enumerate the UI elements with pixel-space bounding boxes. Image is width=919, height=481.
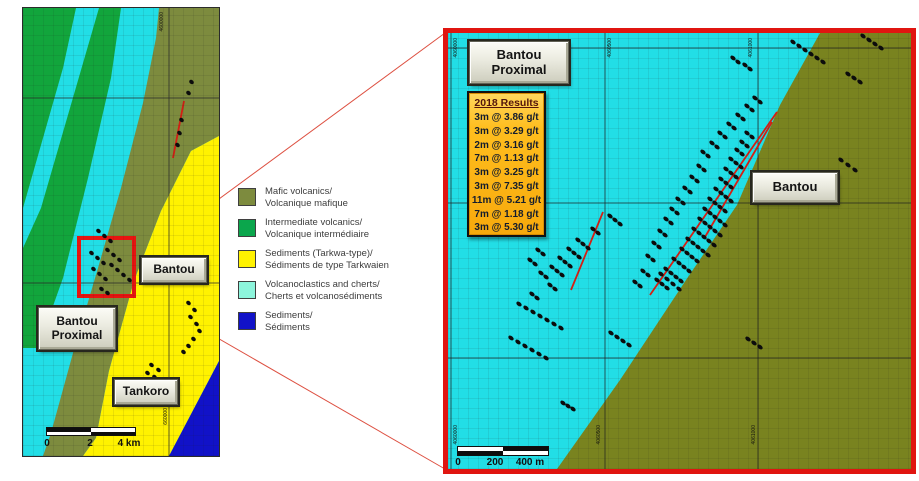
map-label-text: Bantou [773, 180, 818, 195]
map-label-text: Bantou [56, 315, 97, 328]
scale-tick: 2 [82, 438, 98, 449]
legend-item: Volcanoclastics and cherts/Cherts et vol… [238, 279, 438, 302]
legend-item: Sediments/Sédiments [238, 310, 438, 333]
coordinate-label: 4060000 [453, 38, 459, 57]
result-row: 3m @ 3.86 g/t [469, 111, 544, 125]
map-label-bantou: Bantou [752, 172, 838, 203]
coordinate-label: 4600000 [159, 12, 165, 31]
result-row: 7m @ 1.18 g/t [469, 208, 544, 222]
scale-segment [47, 432, 91, 436]
scale-bar-m [457, 446, 549, 456]
coordinate-label: 4060000 [453, 425, 459, 444]
legend-item: Sediments (Tarkwa-type)/Sédiments de typ… [238, 248, 438, 271]
map-label-bantou-proximal: Bantou Proximal [38, 307, 116, 350]
legend-color-swatch [238, 312, 256, 330]
zoom-map-panel: Bantou Proximal 2018 Results 3m @ 3.86 g… [443, 28, 916, 474]
legend-color-swatch [238, 219, 256, 237]
map-label-tankoro: Tankoro [114, 379, 178, 405]
map-label-bantou-proximal: Bantou Proximal [469, 41, 569, 84]
legend-color-swatch [238, 188, 256, 206]
legend-label-en: Sediments (Tarkwa-type)/ [265, 248, 389, 260]
coordinate-label: 4060500 [596, 425, 602, 444]
map-label-text: Tankoro [123, 385, 169, 398]
coordinate-label: 4061000 [748, 38, 754, 57]
map-label-text: Proximal [52, 329, 103, 342]
result-row: 3m @ 5.30 g/t [469, 221, 544, 235]
drill-results-box: 2018 Results 3m @ 3.86 g/t3m @ 3.29 g/t2… [467, 91, 546, 237]
legend-label: Sediments (Tarkwa-type)/Sédiments de typ… [265, 248, 389, 271]
legend-label-en: Intermediate volcanics/ [265, 217, 369, 229]
legend-label-fr: Cherts et volcanosédiments [265, 291, 382, 303]
drill-results-title: 2018 Results [469, 97, 544, 109]
legend-label: Volcanoclastics and cherts/Cherts et vol… [265, 279, 382, 302]
legend-item: Mafic volcanics/Volcanique mafique [238, 186, 438, 209]
result-row: 7m @ 1.13 g/t [469, 152, 544, 166]
regional-map: Bantou Bantou Proximal Tankoro 0 2 4 km … [22, 7, 220, 457]
scale-tick: 400 m [508, 457, 552, 468]
legend-label-fr: Sédiments de type Tarkwaien [265, 260, 389, 272]
scale-tick: 4 km [109, 438, 149, 449]
map-label-bantou: Bantou [141, 257, 207, 283]
legend-color-swatch [238, 281, 256, 299]
legend-label-fr: Volcanique mafique [265, 198, 348, 210]
result-row: 3m @ 3.29 g/t [469, 125, 544, 139]
scale-segment [91, 432, 135, 436]
result-row: 2m @ 3.16 g/t [469, 139, 544, 153]
geology-legend: Mafic volcanics/Volcanique mafiqueInterm… [238, 186, 438, 341]
result-row: 11m @ 5.21 g/t [469, 194, 544, 208]
legend-label: Intermediate volcanics/Volcanique interm… [265, 217, 369, 240]
legend-label-en: Sediments/ [265, 310, 313, 322]
scale-tick: 200 [481, 457, 509, 468]
map-label-text: Bantou [497, 48, 542, 63]
map-label-text: Bantou [153, 263, 194, 276]
legend-label-en: Volcanoclastics and cherts/ [265, 279, 382, 291]
legend-item: Intermediate volcanics/Volcanique interm… [238, 217, 438, 240]
result-row: 3m @ 3.25 g/t [469, 166, 544, 180]
legend-color-swatch [238, 250, 256, 268]
figure-geological-map: Bantou Bantou Proximal Tankoro 0 2 4 km … [0, 0, 919, 481]
legend-label: Mafic volcanics/Volcanique mafique [265, 186, 348, 209]
coordinate-label: 4060500 [607, 38, 613, 57]
coordinate-label: 4061000 [751, 425, 757, 444]
legend-label-fr: Volcanique intermédiaire [265, 229, 369, 241]
scale-segment [458, 451, 503, 455]
scale-bar-km [46, 427, 136, 436]
legend-label-en: Mafic volcanics/ [265, 186, 348, 198]
result-row: 3m @ 7.35 g/t [469, 180, 544, 194]
coordinate-label: 660000 [163, 408, 169, 425]
legend-label: Sediments/Sédiments [265, 310, 313, 333]
scale-tick: 0 [42, 438, 52, 449]
drill-results-rows: 3m @ 3.86 g/t3m @ 3.29 g/t2m @ 3.16 g/t7… [469, 111, 544, 235]
scale-segment [503, 451, 548, 455]
scale-tick: 0 [453, 457, 463, 468]
legend-label-fr: Sédiments [265, 322, 313, 334]
map-label-text: Proximal [492, 63, 547, 78]
